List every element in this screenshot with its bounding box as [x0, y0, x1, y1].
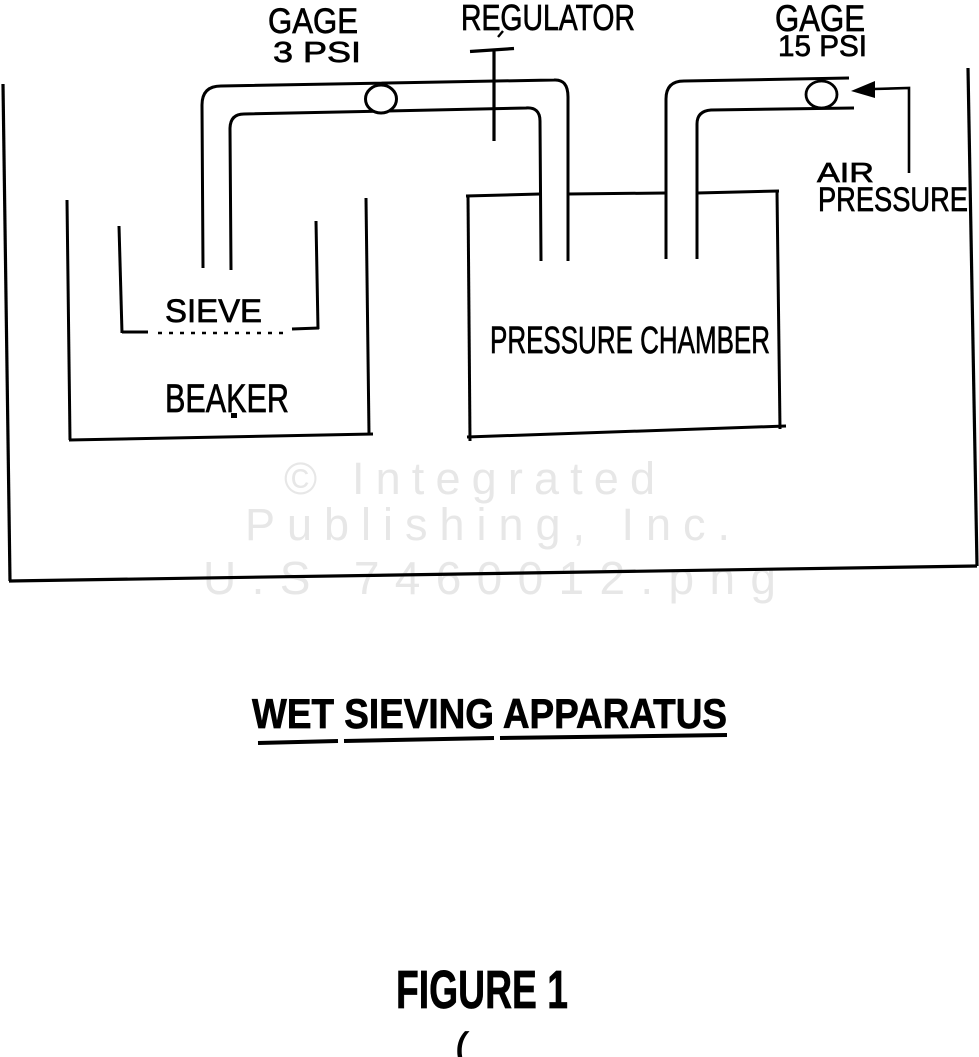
- svg-text:SIEVE: SIEVE: [165, 293, 262, 329]
- svg-text:BEAKER: BEAKER: [165, 377, 289, 421]
- svg-text:15 PSI: 15 PSI: [778, 30, 867, 63]
- svg-text:GAGE: GAGE: [268, 2, 358, 41]
- svg-text:3 PSI: 3 PSI: [273, 37, 361, 69]
- svg-text:WET SIEVING APPARATUS: WET SIEVING APPARATUS: [252, 690, 727, 737]
- svg-text:PRESSURE CHAMBER: PRESSURE CHAMBER: [490, 320, 770, 362]
- svg-text:PRESSURE: PRESSURE: [818, 181, 968, 219]
- svg-text:FIGURE 1: FIGURE 1: [396, 960, 568, 1020]
- svg-text:(: (: [455, 1024, 469, 1057]
- svg-text:REGULATOR: REGULATOR: [461, 0, 635, 38]
